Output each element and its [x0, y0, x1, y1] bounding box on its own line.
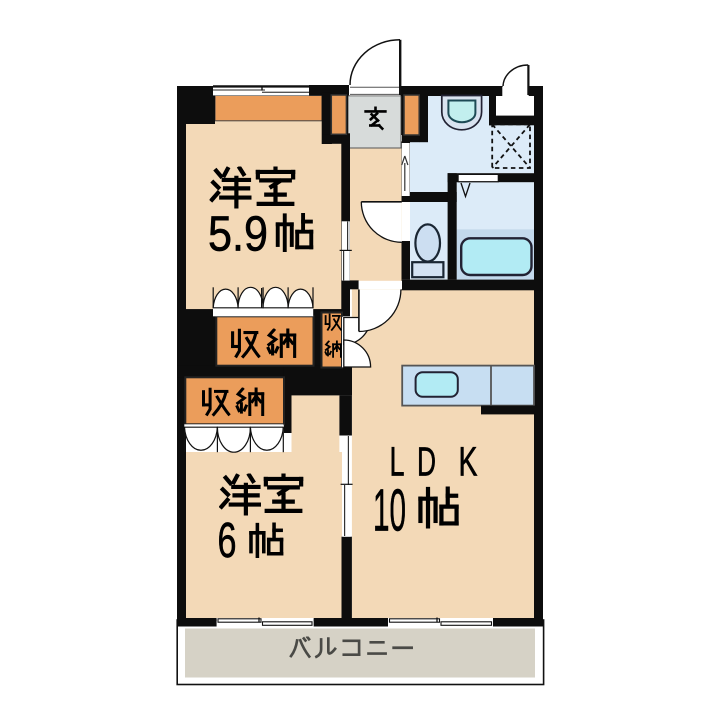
svg-text:K: K	[459, 439, 478, 485]
svg-text:6: 6	[218, 514, 237, 568]
svg-text:10: 10	[373, 478, 406, 544]
svg-text:5.9: 5.9	[208, 208, 268, 262]
svg-text:D: D	[417, 439, 436, 485]
